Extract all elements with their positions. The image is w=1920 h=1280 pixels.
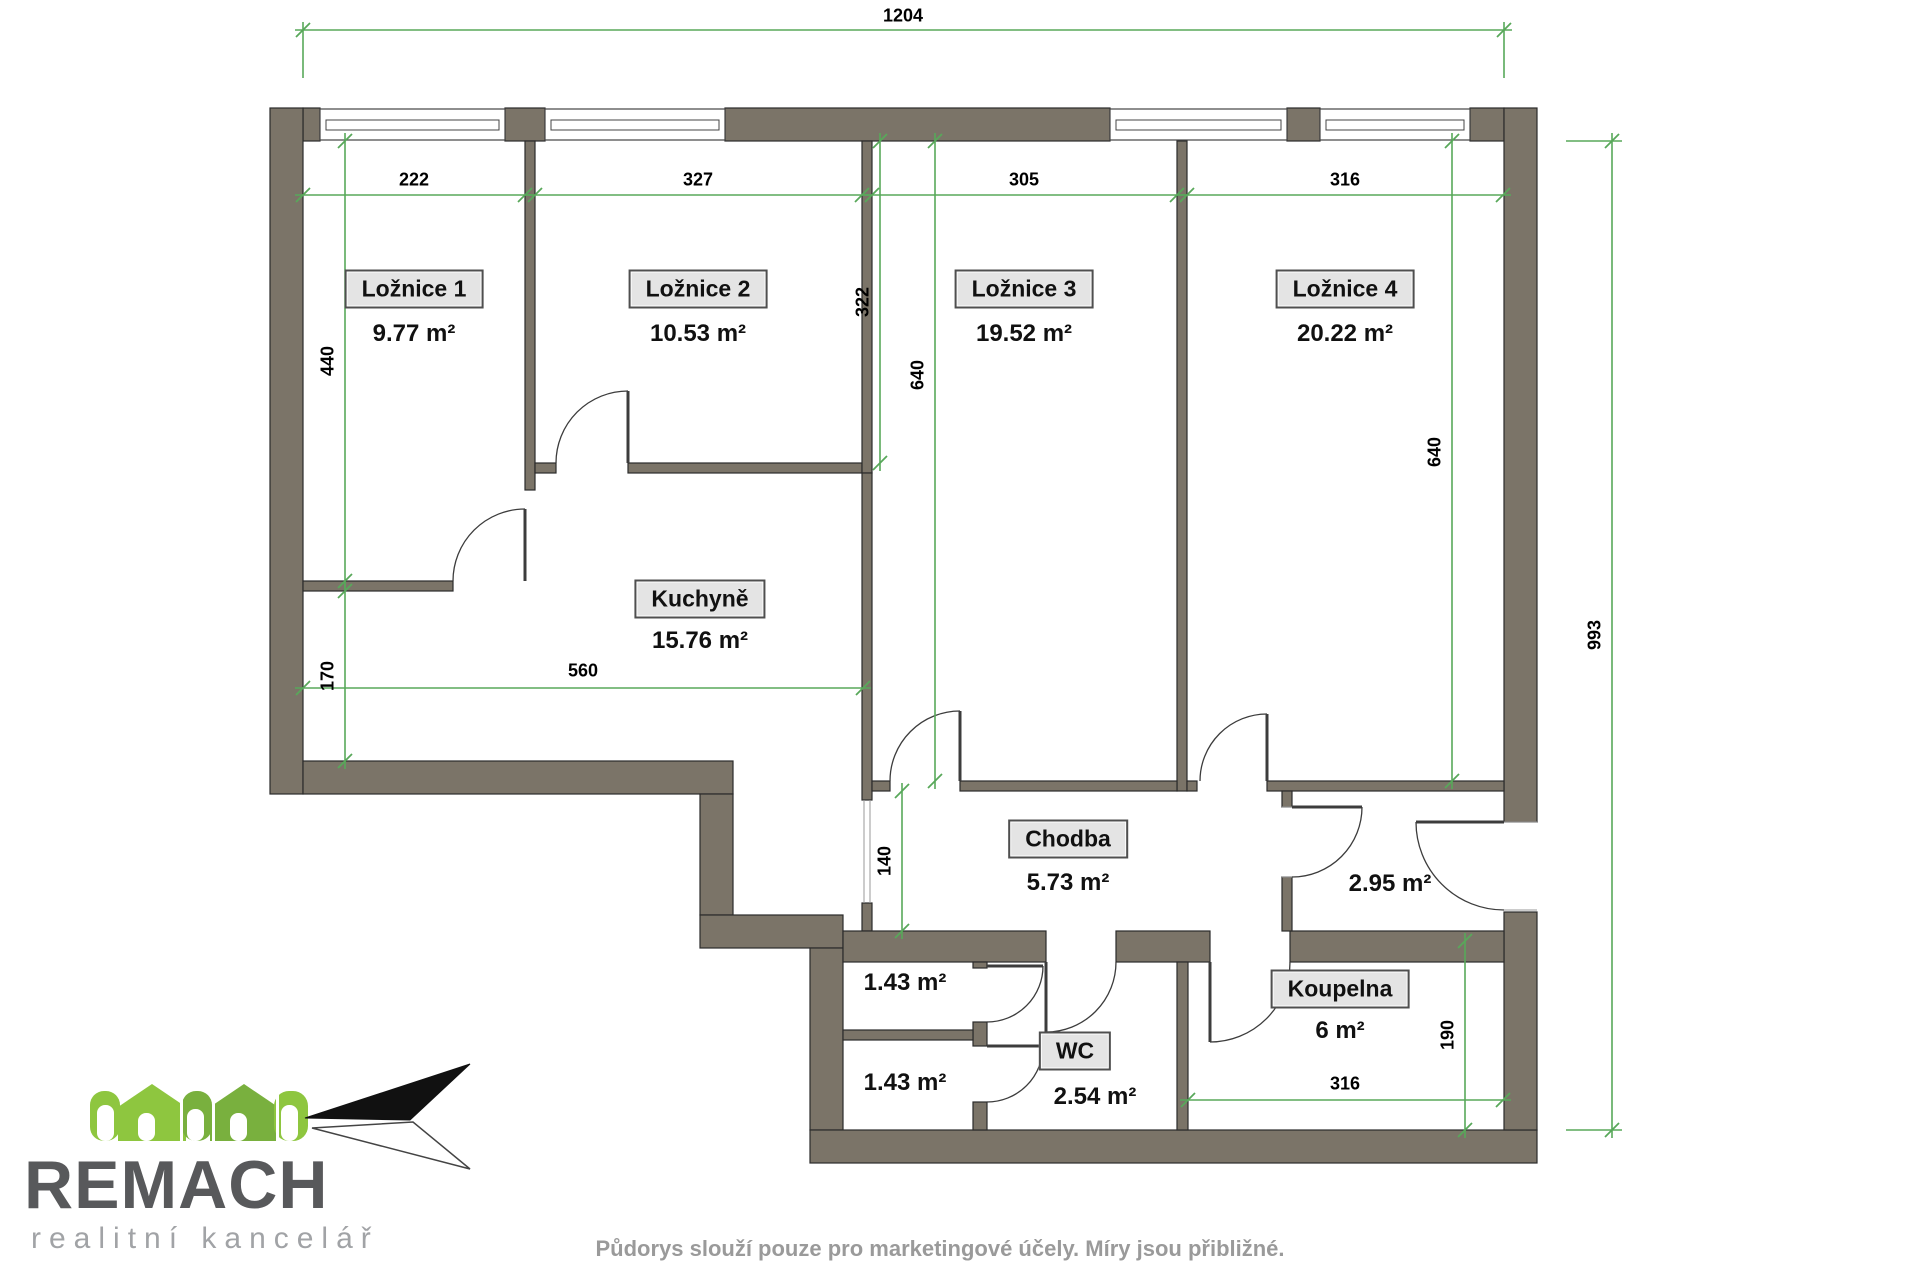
wall-segment	[1267, 781, 1504, 791]
wall-segment	[700, 794, 733, 915]
wall-segment	[973, 1022, 987, 1046]
houses-icon-shape	[138, 1113, 155, 1141]
window-glazing	[551, 120, 719, 130]
houses-icon-shape	[97, 1105, 114, 1141]
window-glazing	[1326, 120, 1464, 130]
houses-icon	[90, 1082, 308, 1142]
wall-segment	[872, 781, 890, 791]
door-swing-arc	[556, 391, 628, 463]
wall-segment	[862, 473, 872, 800]
wall-segment	[1470, 108, 1504, 141]
door-swing-arc	[1210, 962, 1290, 1042]
houses-icon-shape	[230, 1113, 247, 1141]
wall-segment	[1187, 781, 1197, 791]
wall-segment	[505, 108, 545, 141]
wall-segment	[270, 108, 303, 794]
door-swing-arc	[890, 711, 960, 781]
floor-plan-page: 1204222327305316440170322640640560140190…	[0, 0, 1920, 1280]
compass-arrow-icon	[305, 1064, 470, 1169]
door-swing-arc	[987, 1046, 1043, 1102]
door-swing-arc	[1292, 807, 1362, 877]
wall-segment	[843, 931, 1046, 962]
wall-segment	[1282, 877, 1292, 931]
door-swing-arc	[453, 509, 525, 581]
wall-segment	[1177, 141, 1187, 791]
door-swing-arc	[987, 966, 1043, 1022]
wall-segment	[862, 903, 872, 931]
houses-icon-shape	[281, 1105, 298, 1141]
wall-segment	[303, 108, 320, 141]
wall-segment	[843, 1030, 973, 1040]
wall-segment	[973, 1102, 987, 1130]
houses-icon-shape	[187, 1109, 204, 1141]
brand-name: REMACH	[24, 1146, 328, 1224]
door-swing-arc	[1416, 822, 1504, 910]
wall-segment	[1282, 791, 1292, 807]
wall-segment	[725, 108, 1110, 141]
houses-icon-shape	[180, 1082, 183, 1142]
wall-segment	[1504, 912, 1537, 1130]
wall-segment	[700, 915, 843, 948]
wall-segment	[1290, 931, 1504, 962]
window-glazing	[1116, 120, 1281, 130]
wall-segment	[303, 581, 453, 591]
wall-segment	[810, 948, 843, 1130]
disclaimer-text: Půdorys slouží pouze pro marketingové úč…	[380, 1236, 1500, 1262]
wall-segment	[810, 1130, 1537, 1163]
wall-segment	[960, 781, 1177, 791]
houses-icon-shape	[276, 1082, 279, 1142]
wall-segment	[535, 463, 556, 473]
houses-icon-shape	[212, 1082, 215, 1142]
door-swing-arc	[1046, 962, 1116, 1032]
wall-segment	[973, 962, 987, 968]
door-swing-arc	[1200, 714, 1267, 781]
wall-segment	[1504, 108, 1537, 822]
brand-subtitle: realitní kancelář	[31, 1222, 379, 1256]
wall-segment	[628, 463, 862, 473]
wall-segment	[1116, 931, 1210, 962]
window-glazing	[326, 120, 499, 130]
wall-segment	[303, 761, 733, 794]
wall-segment	[1287, 108, 1320, 141]
